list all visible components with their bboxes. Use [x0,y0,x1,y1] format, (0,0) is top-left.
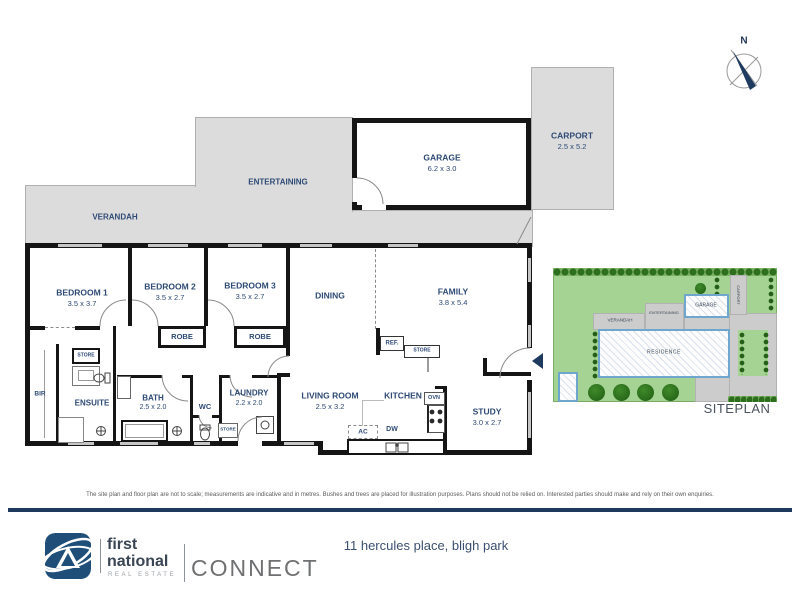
family-dims: 3.8 x 5.4 [439,299,468,307]
siteplan-driveway [695,376,730,402]
bedroom2-label: BEDROOM 2 [144,282,195,291]
wall [252,375,280,378]
wall [277,373,281,446]
siteplan-shrub-row [768,277,774,311]
footer-divider-rule [8,508,792,512]
window [388,244,418,247]
wall [483,372,531,376]
ac-label: AC [358,428,367,435]
brand-real-estate: REAL ESTATE [108,572,176,578]
kitchen-label: KITCHEN [384,391,422,400]
bedroom1-label: BEDROOM 1 [56,288,107,297]
ensuite-label: ENSUITE [75,400,110,409]
ref-label: REF. [385,341,398,348]
siteplan-carport-label: CARPORT [736,285,740,304]
wall [128,243,132,326]
pantry-stub [427,358,429,372]
vanity-basin [78,370,94,381]
siteplan-shrub-row [592,331,598,379]
robe2-label: ROBE [249,333,271,341]
window [300,244,332,247]
entertaining-label: ENTERTAINING [248,179,307,188]
window [148,244,188,247]
siteplan-outbuilding [558,372,578,402]
garage-dims: 6.2 x 3.0 [428,165,457,173]
wall [277,373,290,377]
siteplan-tree [637,384,654,401]
wall [352,118,357,178]
bedroom2-dims: 3.5 x 2.7 [156,294,185,302]
first-national-logo-icon [45,533,91,579]
window [58,244,102,247]
store-laundry-label: STORE [220,428,235,433]
bedroom3-dims: 3.5 x 2.7 [236,293,265,301]
bir-label: BIR [34,390,45,397]
carport-dims: 2.5 x 5.2 [558,143,587,151]
bedroom3-label: BEDROOM 3 [224,281,275,290]
entry-marker [532,353,543,369]
wall [25,243,30,446]
bath-label: BATH [142,395,164,404]
bath-dims: 2.5 x 2.0 [140,404,167,412]
laundry-label: LAUNDRY [230,390,269,399]
kitchen-bench [347,439,445,455]
stove-panel [427,405,445,433]
bath-vanity [117,376,131,399]
wc-label: WC [199,403,212,411]
family-label: FAMILY [438,287,468,296]
compass-icon [727,50,761,90]
siteplan-entertaining-label: ENTERTAINING [649,311,678,315]
window [284,442,314,445]
brand-national: national [107,553,168,571]
laundry-dims: 2.2 x 2.0 [236,400,263,408]
bir-open-dash [45,327,75,328]
window [528,325,531,347]
living-dims: 2.5 x 3.2 [316,403,345,411]
siteplan-tree [662,384,679,401]
window [528,392,531,438]
siteplan-shrub-row [763,332,769,375]
wall [190,375,193,446]
window [194,442,210,445]
compass-n-label: N [740,36,747,47]
wall [113,326,116,446]
wall [352,118,531,123]
bathtub-inner [125,424,164,438]
wall [75,326,100,330]
wall [222,375,230,378]
gray-seam-patch [193,187,198,245]
dw-label: DW [386,426,398,434]
siteplan-shrub-row [739,332,745,375]
study-dims: 3.0 x 2.7 [473,419,502,427]
siteplan-tree [695,283,706,294]
living-label: LIVING ROOM [301,391,358,400]
wall [386,205,531,210]
kitchen-counter-line [362,400,384,401]
shower-box [58,417,84,443]
disclaimer-text: The site plan and floor plan are not to … [0,492,800,498]
wall [286,326,290,356]
study-label: STUDY [473,407,502,416]
kitchen-counter-line [362,400,363,426]
wall [182,375,190,378]
wall [352,205,362,210]
siteplan-residence-label: RESIDENCE [647,350,681,356]
garage-label: GARAGE [423,153,460,162]
ovn-label: OVN [428,395,440,401]
wall [435,386,445,389]
siteplan-tree [588,384,605,401]
floorplan-page: N VERANDAH ENTERTAINING GARAGE 6.2 x 3.0… [0,0,800,600]
siteplan-garage-label: GARAGE [695,303,716,309]
wall [25,326,45,330]
wall [204,243,208,326]
dining-family-open-dash [375,249,376,329]
store-hall-label: STORE [77,353,94,359]
siteplan-title: SITEPLAN [704,402,771,416]
wall [286,243,290,326]
window [120,442,158,445]
window [528,258,531,282]
dining-label: DINING [315,291,345,300]
property-address: 11 hercules place, bligh park [316,538,536,553]
laundry-tub [256,416,274,434]
gray-seam-patch [350,212,354,245]
carport-label: CARPORT [551,131,593,140]
verandah-label: VERANDAH [92,214,137,223]
robe1-label: ROBE [171,333,193,341]
brand-first: first [107,536,137,554]
bedroom1-dims: 3.5 x 3.7 [68,300,97,308]
store-kitchen-label: STORE [413,348,430,354]
wall [526,118,531,210]
wall [193,415,199,418]
siteplan-entertaining [645,303,684,330]
window [228,244,262,247]
logo-divider [184,544,185,582]
logo-divider [100,539,101,573]
entertaining-strip [352,210,533,247]
siteplan-verandah-label: VERANDAH [607,319,632,324]
siteplan-tree [613,384,630,401]
brand-connect: CONNECT [191,555,319,582]
